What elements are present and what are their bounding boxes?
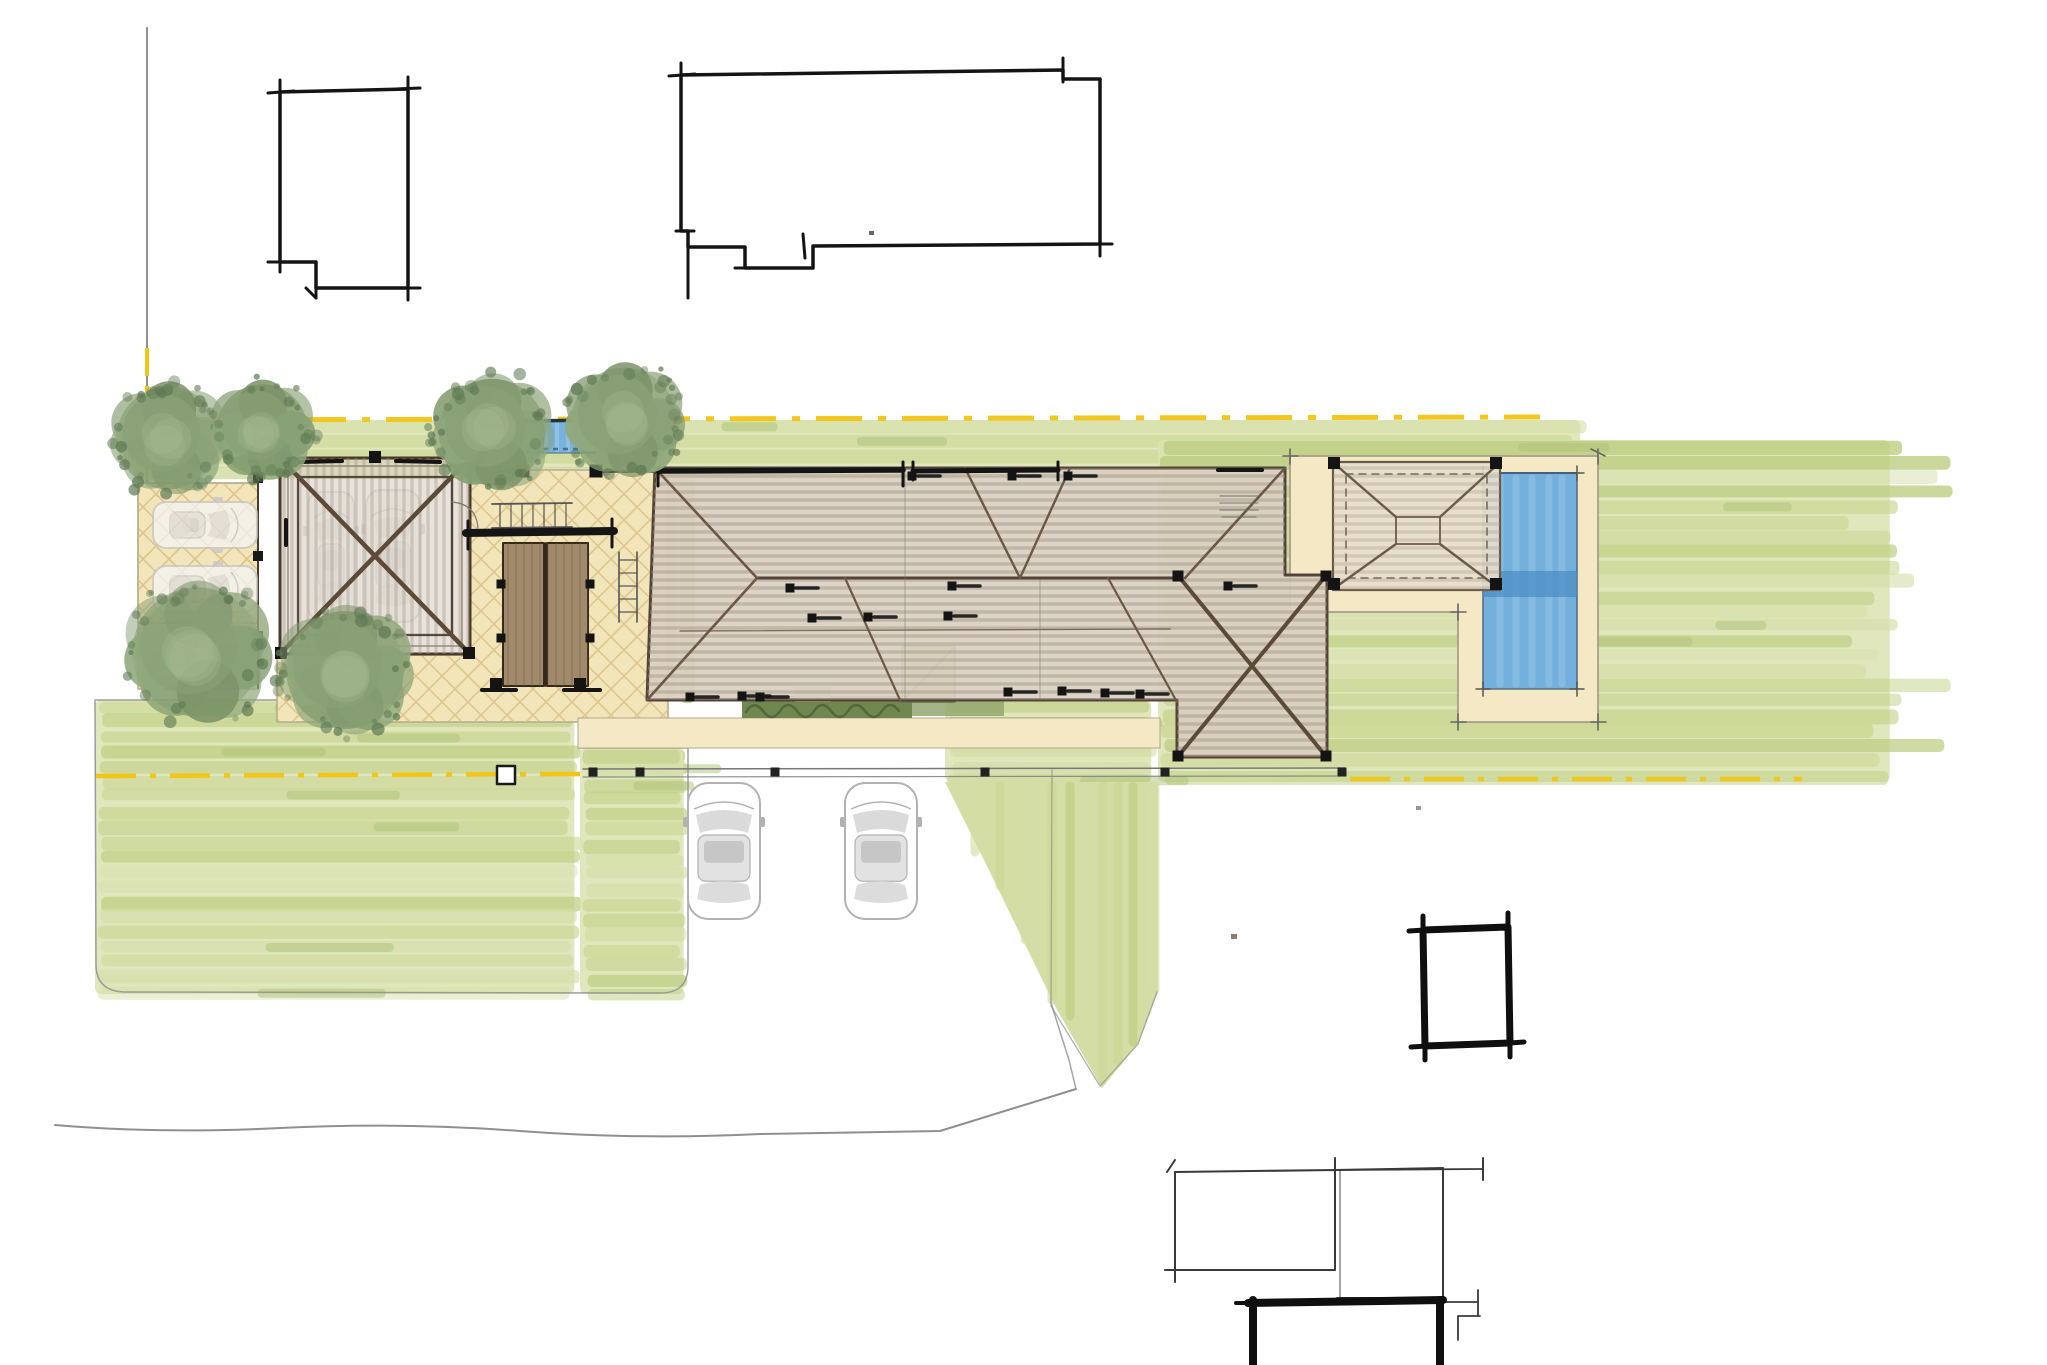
neighbor-building-n	[681, 70, 1100, 268]
sketch-ticks	[1165, 1158, 1483, 1282]
lawn-front-left-east	[580, 748, 694, 1000]
sketch-building-b	[1335, 1168, 1443, 1298]
neighbor-n-ticks	[669, 58, 1112, 298]
sketch-jog	[1443, 1290, 1480, 1340]
speck-2	[1231, 934, 1237, 939]
neighbor-nw-ticks	[268, 77, 420, 300]
front-walk-paving	[578, 718, 1160, 748]
speck-3	[1416, 806, 1421, 810]
sketch-building-a	[1175, 1170, 1335, 1270]
lawn-front-left	[95, 700, 583, 1000]
entry-gate-beam	[466, 531, 614, 533]
heavy-wall-top	[1248, 1300, 1443, 1303]
property-line-north-yellow	[128, 417, 1540, 420]
house-north-beam-b	[913, 470, 1058, 471]
entry-door-right	[547, 543, 588, 686]
driveway-car-1	[683, 783, 765, 919]
house-north-beam-a	[658, 470, 903, 471]
site-plan-canvas	[0, 0, 2047, 1365]
entry-door-left	[503, 543, 544, 686]
site-plan-sketch	[0, 0, 2047, 1365]
south-fence-upper	[583, 768, 1345, 769]
speck-1	[869, 231, 874, 235]
neighbor-building-nw	[280, 89, 408, 288]
tree-entry-east	[562, 362, 685, 480]
south-boundary-post	[497, 766, 515, 784]
tree-entry-west	[424, 367, 554, 491]
road-edge-line	[55, 1089, 1076, 1136]
sketch-line-top	[1335, 1169, 1483, 1170]
parked-car-ghost-1	[153, 497, 257, 553]
driveway-car-2	[840, 783, 922, 919]
entry-stair-rail-1	[492, 503, 572, 504]
outbuilding-square	[1423, 927, 1510, 1046]
